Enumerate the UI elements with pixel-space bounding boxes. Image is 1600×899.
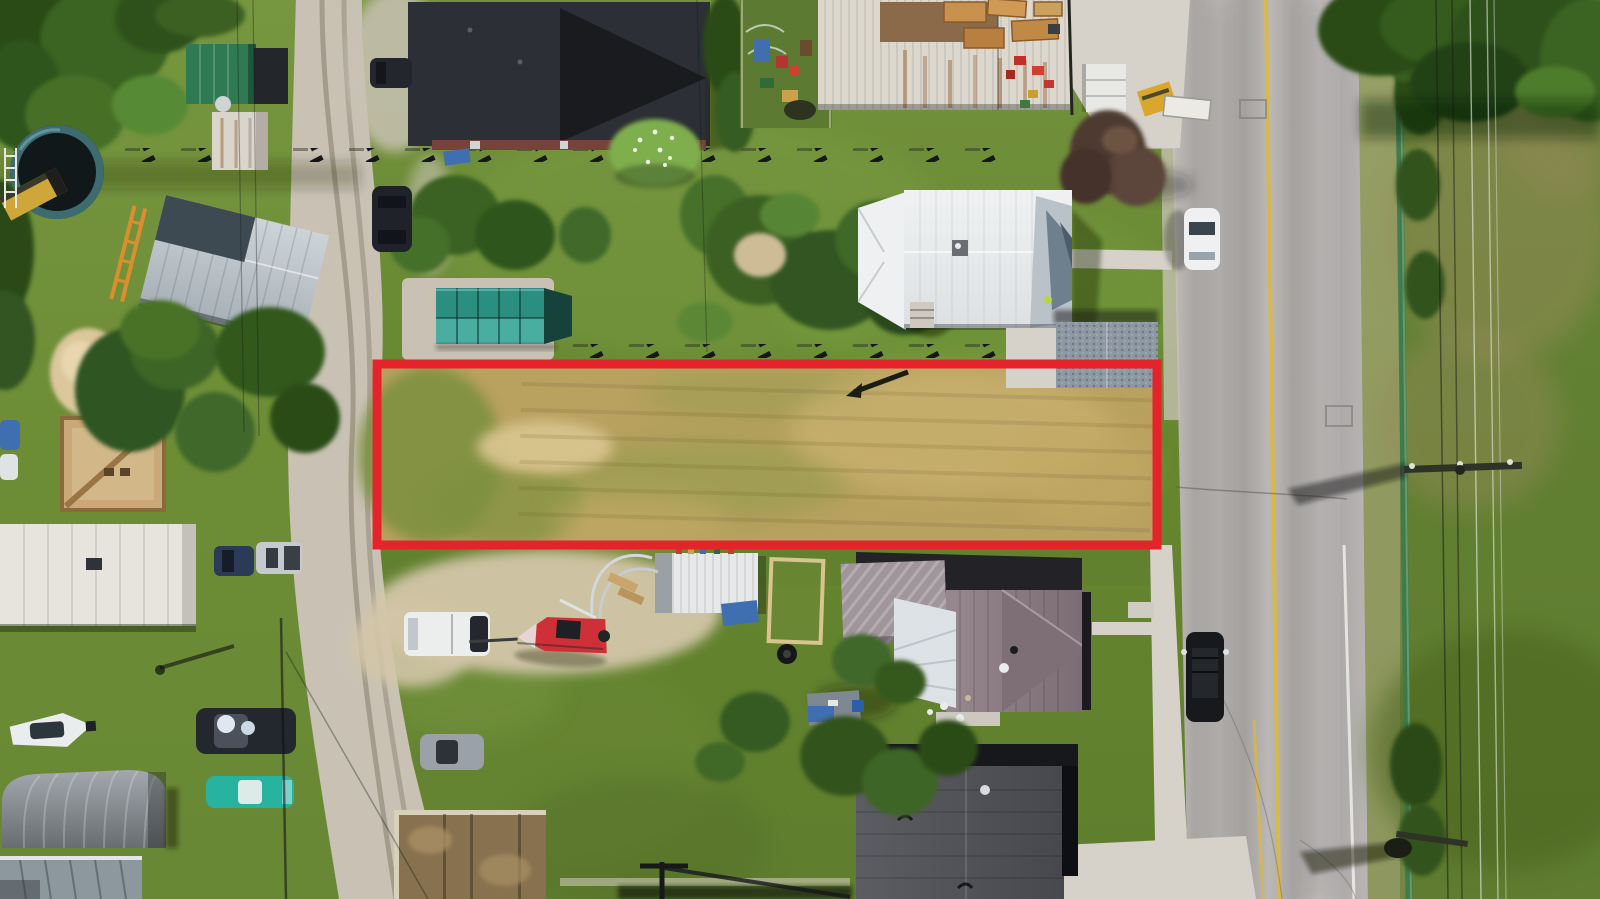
vacant-lot: [358, 362, 1158, 550]
white-container: [1082, 64, 1126, 112]
flowering-bush: [609, 119, 701, 188]
stairs: [910, 302, 934, 328]
garden-bed-frame: [769, 559, 824, 643]
satellite-dish: [215, 96, 231, 112]
garden-patch: [394, 810, 546, 899]
dark-shed: [254, 48, 288, 104]
mow-lines: [518, 362, 1154, 550]
dark-suv-road: [1181, 632, 1229, 722]
metal-roof-building-corner: [0, 856, 142, 899]
white-van: [404, 612, 490, 656]
tree-band-top-right: [1318, 0, 1600, 138]
white-house: [858, 190, 1102, 330]
suv-parked-mid: [372, 186, 412, 252]
walkway: [1092, 622, 1164, 635]
dirt-patch: [734, 233, 786, 277]
suv-parked-top: [370, 58, 412, 88]
pickup-truck: [256, 542, 302, 574]
quonset-shelter: [2, 770, 178, 848]
trailer-home: [0, 524, 196, 632]
fence-row-north: [0, 148, 1008, 162]
dark-car: [196, 708, 296, 754]
tire: [777, 644, 797, 664]
blue-car: [214, 546, 254, 576]
silver-car: [420, 734, 484, 770]
gravel-strip: [560, 878, 850, 886]
blue-tarp: [721, 600, 759, 626]
white-car-road: [1164, 208, 1220, 270]
teal-car: [206, 776, 294, 808]
person-hivis: [1044, 296, 1052, 304]
aerial-photo: [0, 0, 1600, 899]
tarped-boat: [0, 420, 20, 450]
teal-shed: [402, 278, 572, 360]
green-roof-shed: [186, 44, 256, 104]
driveway-apron: [1062, 836, 1256, 899]
photo-canvas: [0, 0, 1600, 899]
small-boat: [0, 454, 18, 480]
white-sign-board: [1163, 96, 1211, 121]
